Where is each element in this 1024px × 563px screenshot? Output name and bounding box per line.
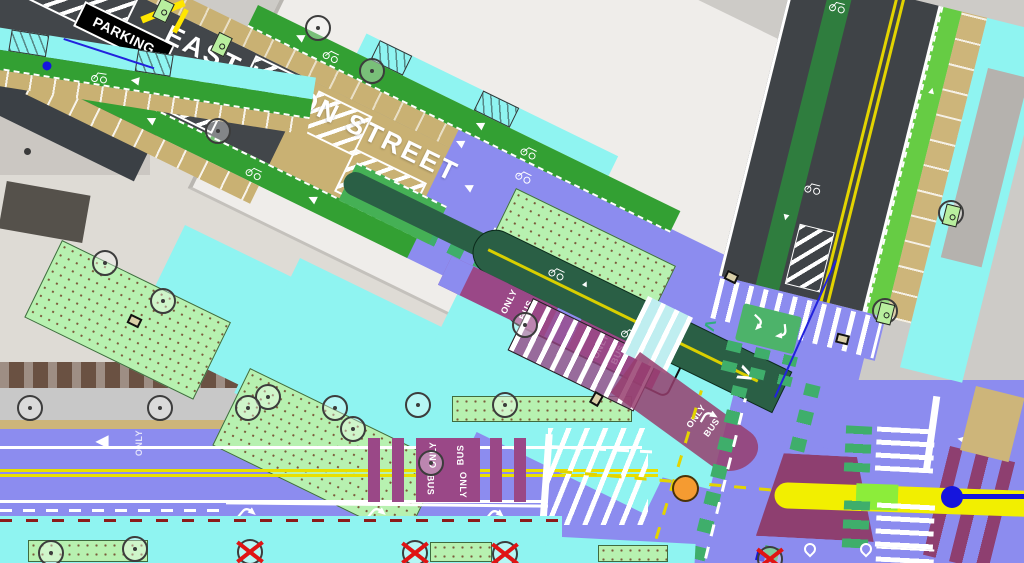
tree-icon xyxy=(122,536,148,562)
turn-arrow-icon xyxy=(744,311,767,334)
left-arrow-marking: ◀ xyxy=(130,76,139,87)
bus-only-marking: ONLY xyxy=(458,472,468,498)
crosswalk-east-leg xyxy=(875,501,935,550)
tree-icon xyxy=(92,250,118,276)
tree-icon xyxy=(512,312,538,338)
removed-tree-icon xyxy=(237,539,263,563)
left-arrow-marking: ◀ xyxy=(96,434,108,450)
plaza-table xyxy=(24,148,31,155)
landscape-planter xyxy=(598,545,668,562)
dashed-lane-line xyxy=(0,509,228,512)
tree-icon xyxy=(305,15,331,41)
tree-icon xyxy=(492,392,518,418)
bus-only-marking: BUS xyxy=(455,445,465,466)
only-marking: ONLY xyxy=(134,430,144,456)
landscape-planter xyxy=(430,542,492,562)
removed-tree-icon xyxy=(402,540,428,563)
tree-icon xyxy=(340,416,366,442)
landscape-planter xyxy=(452,396,632,422)
intersection-center-marker xyxy=(672,475,699,502)
removed-tree-icon xyxy=(492,541,518,563)
tree-icon xyxy=(359,58,385,84)
transit-route-line xyxy=(960,494,1024,499)
dashed-red-curb-line xyxy=(0,519,560,522)
street-design-plan-map: ◀ ◀ PARKING EAST UNION STREET ◀ ◀ ◀ ◀ ◀ … xyxy=(0,0,1024,563)
tree-icon xyxy=(405,392,431,418)
bus-lane-stripe xyxy=(368,438,380,502)
tree-icon xyxy=(17,395,43,421)
tree-icon xyxy=(418,450,444,476)
tree-icon xyxy=(38,540,64,563)
bus-only-lane-markings: ONLY BUS BUS ONLY xyxy=(368,438,543,502)
tree-icon xyxy=(150,288,176,314)
bike-crossing-dashes xyxy=(842,499,870,548)
bike-crossing-dashes xyxy=(844,425,872,472)
tree-icon xyxy=(147,395,173,421)
tree-icon xyxy=(235,395,261,421)
bus-only-marking: ONLY xyxy=(499,288,519,316)
turn-arrow-icon xyxy=(772,322,790,340)
up-arrow-marking: ▲ xyxy=(580,278,592,290)
bus-only-marking: BUS xyxy=(425,475,435,496)
tree-icon xyxy=(322,395,348,421)
bus-lane-stripe xyxy=(514,438,526,502)
bus-lane-stripe xyxy=(392,438,404,502)
bus-lane-stripe xyxy=(490,438,502,502)
tree-icon xyxy=(205,118,231,144)
removed-tree-icon xyxy=(757,546,783,563)
crosswalk-east-leg xyxy=(876,546,935,563)
